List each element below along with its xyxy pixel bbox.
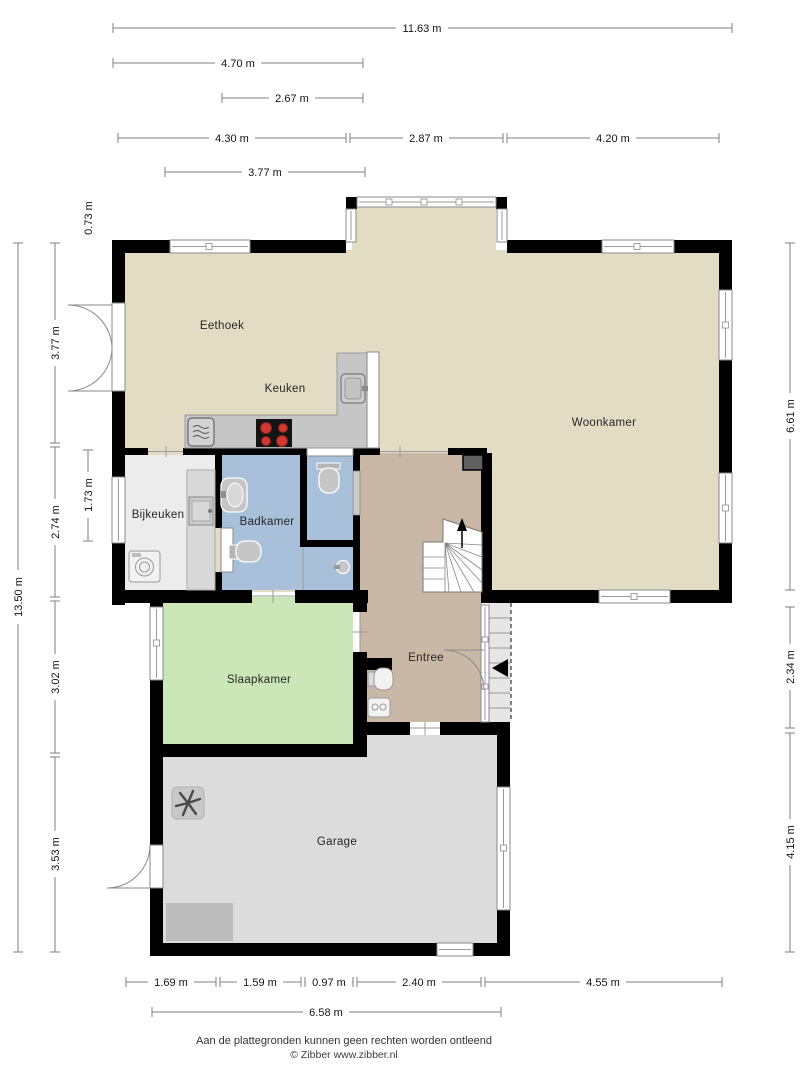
svg-text:1.73 m: 1.73 m xyxy=(83,478,95,512)
dim-left-302: 3.02 m xyxy=(48,601,62,753)
window-bay-front xyxy=(357,197,496,207)
window-bay-left xyxy=(346,209,356,242)
svg-text:4.55 m: 4.55 m xyxy=(586,977,620,989)
dim-top-287: 2.87 m xyxy=(350,131,503,145)
svg-text:3.77 m: 3.77 m xyxy=(50,326,62,360)
dim-left-total: 13.50 m xyxy=(11,243,25,952)
svg-text:0.73 m: 0.73 m xyxy=(83,201,95,235)
svg-text:2.34 m: 2.34 m xyxy=(785,650,797,684)
dim-right-415: 4.15 m xyxy=(783,733,797,952)
washing-machine-icon xyxy=(129,551,160,582)
dimension-lines-top: 11.63 m 4.70 m 2.67 m 4.30 m 2.87 m 4.20… xyxy=(113,21,732,179)
window-bay-right xyxy=(497,209,507,242)
workbench xyxy=(166,903,233,941)
window-garage-bottom xyxy=(437,943,473,956)
dim-bottom-240: 2.40 m xyxy=(357,975,481,989)
room-label-badkamer: Badkamer xyxy=(240,516,295,528)
dim-bottom-658: 6.58 m xyxy=(152,1005,501,1019)
window-livingroom-right-lower xyxy=(719,473,732,543)
room-label-slaapkamer: Slaapkamer xyxy=(227,674,291,686)
svg-text:6.61 m: 6.61 m xyxy=(785,399,797,433)
dim-top-430: 4.30 m xyxy=(118,131,346,145)
ventilation-fan-icon xyxy=(172,787,204,819)
footer: Aan de plattegronden kunnen geen rechten… xyxy=(196,1035,492,1061)
dim-bottom-455: 4.55 m xyxy=(485,975,722,989)
svg-text:3.77 m: 3.77 m xyxy=(248,167,282,179)
svg-text:3.53 m: 3.53 m xyxy=(50,837,62,871)
svg-text:4.30 m: 4.30 m xyxy=(215,133,249,145)
window-garage-right xyxy=(497,787,510,910)
bedroom-floor xyxy=(163,597,353,744)
dim-bottom-097: 0.97 m xyxy=(305,975,353,989)
svg-text:2.40 m: 2.40 m xyxy=(402,977,436,989)
wc-door-hall xyxy=(353,471,360,515)
footer-copyright: © Zibber www.zibber.nl xyxy=(290,1049,398,1061)
room-label-bijkeuken: Bijkeuken xyxy=(132,509,185,521)
dim-top-377: 3.77 m xyxy=(165,165,365,179)
kitchen-sink-icon xyxy=(341,374,368,403)
window-utility-left xyxy=(112,477,125,543)
svg-text:1.69 m: 1.69 m xyxy=(154,977,188,989)
dim-right-234: 2.34 m xyxy=(783,607,797,728)
window-livingroom-right-upper xyxy=(719,290,732,360)
dimension-lines-bottom: 1.69 m 1.59 m 0.97 m 2.40 m 4.55 m 6.58 … xyxy=(126,975,722,1019)
dimension-lines-right: 6.61 m 2.34 m 4.15 m xyxy=(783,243,797,952)
dim-right-661: 6.61 m xyxy=(783,243,797,590)
svg-text:2.87 m: 2.87 m xyxy=(409,133,443,145)
window-front-entry-glass xyxy=(481,605,489,722)
room-label-woonkamer: Woonkamer xyxy=(572,417,636,429)
room-label-keuken: Keuken xyxy=(265,383,306,395)
floorplan-svg: Eethoek Keuken Woonkamer Bijkeuken Badka… xyxy=(0,0,810,1080)
svg-text:4.20 m: 4.20 m xyxy=(596,133,630,145)
dimension-lines-left: 0.73 m 3.77 m 1.73 m 2.74 m 13.50 m 3.02… xyxy=(11,195,95,952)
oven-icon xyxy=(188,418,214,446)
svg-text:2.74 m: 2.74 m xyxy=(50,505,62,539)
toilet-wc-icon xyxy=(317,463,340,493)
kitchen-partition-wall xyxy=(367,352,379,448)
dim-left-274: 2.74 m xyxy=(48,447,62,597)
svg-text:1.59 m: 1.59 m xyxy=(243,977,277,989)
svg-text:6.58 m: 6.58 m xyxy=(309,1007,343,1019)
svg-text:2.67 m: 2.67 m xyxy=(275,93,309,105)
dim-left-173: 1.73 m xyxy=(81,450,95,541)
garage-side-door xyxy=(107,845,163,888)
window-livingroom-bottom xyxy=(599,590,670,603)
dim-left-377: 3.77 m xyxy=(48,243,62,443)
svg-text:4.15 m: 4.15 m xyxy=(785,825,797,859)
dim-left-353: 3.53 m xyxy=(48,757,62,952)
wc-door-top xyxy=(307,448,353,456)
utility-counter xyxy=(187,470,215,590)
bay-floor xyxy=(352,205,496,255)
room-label-garage: Garage xyxy=(317,836,357,848)
meter-cabinet xyxy=(463,455,483,470)
room-label-eethoek: Eethoek xyxy=(200,320,244,332)
dim-top-267: 2.67 m xyxy=(222,91,363,105)
dim-bottom-169: 1.69 m xyxy=(126,975,216,989)
washbasin-icon xyxy=(221,478,247,512)
dim-left-073: 0.73 m xyxy=(81,195,95,241)
door-hall-garage xyxy=(410,722,440,735)
svg-text:0.97 m: 0.97 m xyxy=(312,977,346,989)
room-label-entree: Entree xyxy=(408,652,444,664)
svg-text:3.02 m: 3.02 m xyxy=(50,660,62,694)
dim-top-total: 11.63 m xyxy=(113,21,732,35)
dim-top-470: 4.70 m xyxy=(113,56,363,70)
window-top-left xyxy=(170,240,250,253)
dim-top-420: 4.20 m xyxy=(507,131,719,145)
svg-text:11.63 m: 11.63 m xyxy=(403,23,442,35)
dim-bottom-159: 1.59 m xyxy=(220,975,301,989)
svg-text:4.70 m: 4.70 m xyxy=(221,58,255,70)
stove-icon xyxy=(256,419,292,447)
window-top-right xyxy=(602,240,674,253)
window-bedroom-left xyxy=(150,607,163,680)
footer-disclaimer: Aan de plattegronden kunnen geen rechten… xyxy=(196,1035,492,1047)
hall-basin-icon xyxy=(368,698,390,717)
french-doors-dining xyxy=(68,303,125,391)
svg-text:13.50 m: 13.50 m xyxy=(13,577,25,617)
floorplan-page: Eethoek Keuken Woonkamer Bijkeuken Badka… xyxy=(0,0,810,1080)
utility-sink-icon xyxy=(189,497,213,525)
